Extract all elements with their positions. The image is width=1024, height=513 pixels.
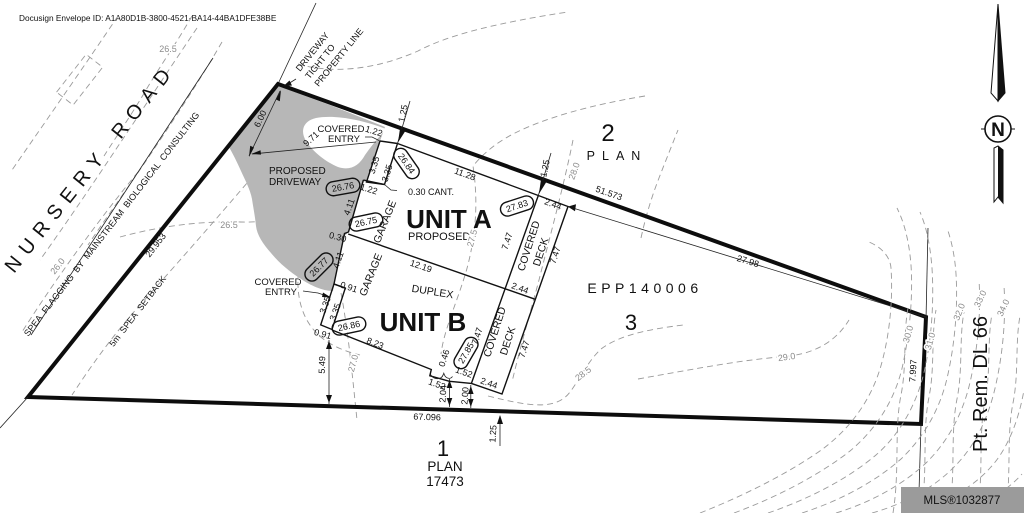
svg-text:Pt. Rem. DL 66: Pt. Rem. DL 66: [970, 316, 992, 452]
svg-text:26.5: 26.5: [220, 220, 238, 230]
svg-text:UNIT A: UNIT A: [406, 204, 492, 234]
svg-text:2.04: 2.04: [437, 385, 448, 403]
svg-text:2: 2: [601, 120, 614, 147]
svg-text:PROPOSED: PROPOSED: [269, 166, 326, 177]
svg-text:ENTRY: ENTRY: [328, 134, 361, 145]
svg-text:1: 1: [437, 436, 449, 461]
svg-text:Docusign Envelope ID: A1A80D1B: Docusign Envelope ID: A1A80D1B-3800-4521…: [19, 13, 277, 23]
svg-text:0.30 CANT.: 0.30 CANT.: [408, 187, 454, 197]
svg-text:N: N: [991, 120, 1005, 141]
svg-text:3: 3: [625, 310, 637, 335]
svg-text:17473: 17473: [426, 474, 464, 489]
svg-text:ENTRY: ENTRY: [265, 287, 298, 298]
svg-text:67.096: 67.096: [413, 412, 441, 423]
svg-text:7.997: 7.997: [907, 359, 918, 382]
svg-text:2.00: 2.00: [459, 387, 470, 405]
svg-text:26.5: 26.5: [159, 44, 177, 54]
svg-text:5.49: 5.49: [317, 356, 328, 374]
svg-text:UNIT B: UNIT B: [380, 307, 467, 337]
svg-text:DRIVEWAY: DRIVEWAY: [269, 177, 322, 188]
svg-text:PLAN: PLAN: [587, 149, 648, 163]
svg-text:EPP140006: EPP140006: [587, 280, 702, 296]
svg-text:PLAN: PLAN: [427, 459, 462, 474]
svg-text:1.25: 1.25: [487, 425, 498, 443]
svg-text:PROPOSED: PROPOSED: [408, 231, 470, 243]
svg-text:MLS®1032877: MLS®1032877: [924, 495, 1001, 507]
